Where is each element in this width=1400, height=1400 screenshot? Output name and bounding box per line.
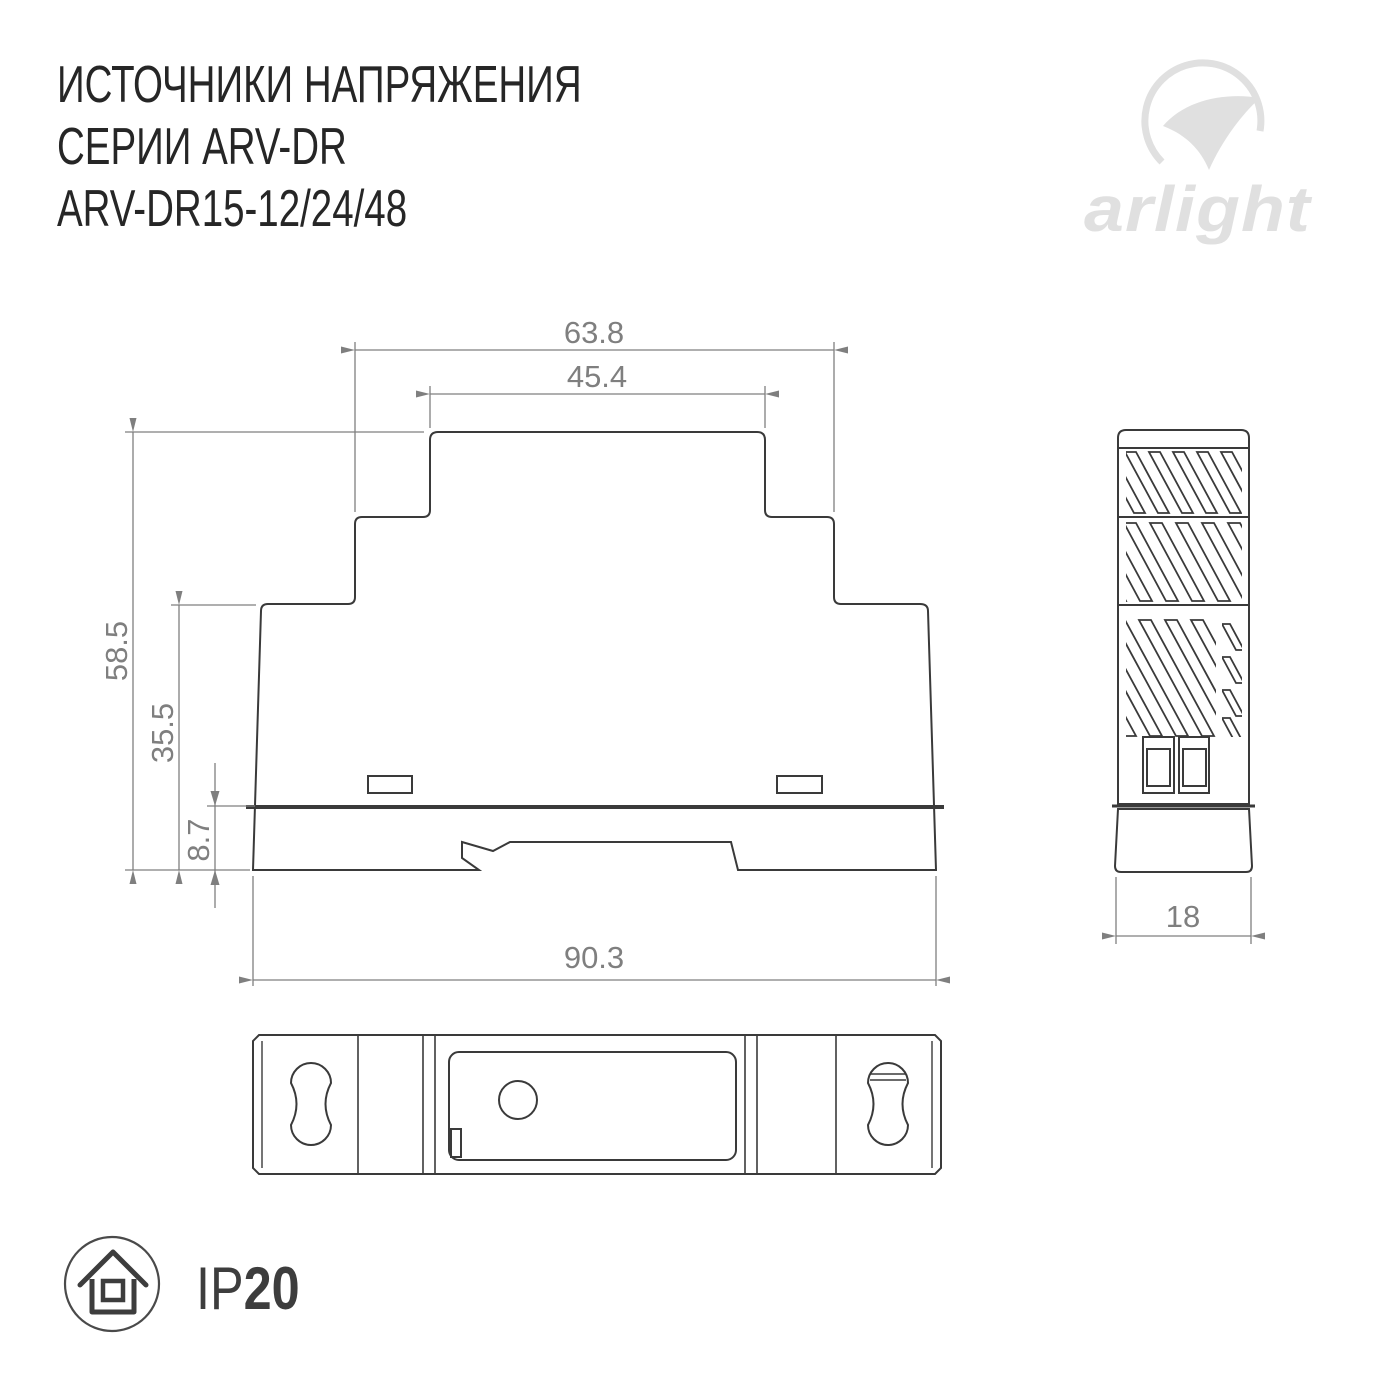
front-right-clip-slot [777, 776, 822, 793]
front-view [246, 432, 944, 870]
dim-value-side-width: 18 [1166, 899, 1200, 934]
bottom-right-keyhole [868, 1063, 908, 1145]
bottom-view-outline [253, 1035, 941, 1174]
dim-value-foot-height: 8.7 [181, 818, 216, 861]
dim-value-total-height: 58.5 [99, 621, 134, 681]
bottom-left-keyhole [291, 1063, 331, 1145]
dim-value-body-height: 35.5 [145, 703, 180, 763]
dimension-labels: 63.8 45.4 58.5 35.5 8.7 90.3 18 [99, 315, 1200, 975]
dim-value-cap-width: 45.4 [567, 359, 627, 394]
side-vent-slots-right [1222, 624, 1244, 744]
side-view [1061, 430, 1282, 872]
bottom-view [253, 1035, 941, 1174]
side-vent-grille-top [1101, 452, 1265, 513]
dimension-annotations [125, 342, 1251, 986]
dim-arrow [211, 791, 220, 806]
dim-arrow [211, 870, 220, 885]
side-view-foot [1115, 809, 1252, 872]
bottom-small-slot [451, 1129, 461, 1157]
side-terminal-blocks [1143, 737, 1209, 793]
dimension-drawing: 63.8 45.4 58.5 35.5 8.7 90.3 18 [0, 0, 1400, 1400]
bottom-label-plate [449, 1052, 736, 1160]
ip20-house-icon [65, 1237, 159, 1331]
ip-rating: IP20 [196, 1254, 300, 1323]
ip-rating-value: 20 [244, 1255, 300, 1322]
side-vent-grille-middle [1072, 523, 1282, 601]
dim-value-step-width: 63.8 [564, 315, 624, 350]
ip-rating-prefix: IP [196, 1255, 244, 1322]
dim-value-total-width: 90.3 [564, 940, 624, 975]
datasheet-page: ИСТОЧНИКИ НАПРЯЖЕНИЯ СЕРИИ ARV-DR ARV-DR… [0, 0, 1400, 1400]
bottom-hole [499, 1081, 537, 1119]
front-left-clip-slot [368, 776, 412, 793]
